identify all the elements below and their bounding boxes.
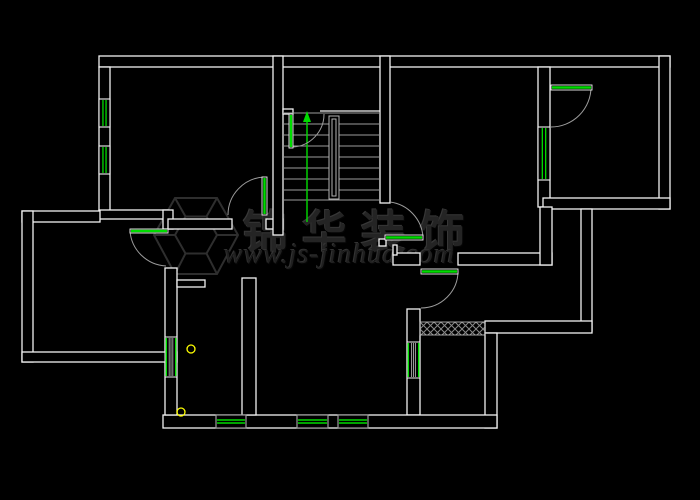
wall bbox=[22, 211, 33, 362]
wall bbox=[22, 352, 177, 362]
wall bbox=[99, 67, 110, 218]
wall bbox=[485, 321, 592, 333]
cad-floorplan-image: 锦华装饰 www.js-jinhua.com bbox=[0, 0, 700, 500]
stair-handrail bbox=[329, 116, 339, 199]
door-swing-arc bbox=[228, 177, 264, 215]
window bbox=[297, 415, 328, 428]
wall bbox=[659, 56, 670, 209]
window bbox=[338, 415, 368, 428]
window bbox=[99, 146, 110, 174]
door-swing-arc bbox=[390, 202, 423, 237]
floor-drain-symbol bbox=[187, 345, 195, 353]
wall bbox=[177, 280, 205, 287]
window bbox=[99, 99, 110, 127]
wall bbox=[168, 219, 232, 229]
wall bbox=[540, 207, 552, 265]
hatched-wall-section bbox=[420, 322, 485, 335]
wall bbox=[581, 209, 592, 331]
door-swing-arc bbox=[551, 87, 591, 127]
wall bbox=[543, 198, 670, 209]
door-swing-arc bbox=[130, 231, 166, 266]
wall bbox=[242, 278, 256, 415]
wall bbox=[485, 333, 497, 428]
wall bbox=[458, 253, 552, 265]
window bbox=[216, 415, 246, 428]
floorplan-drawing bbox=[0, 0, 700, 500]
wall bbox=[393, 245, 397, 255]
window bbox=[538, 127, 550, 180]
door-swing-arc bbox=[421, 271, 458, 308]
wall bbox=[163, 415, 497, 428]
wall bbox=[22, 211, 100, 222]
wall bbox=[273, 56, 283, 235]
wall bbox=[380, 56, 390, 203]
wall bbox=[99, 210, 168, 219]
